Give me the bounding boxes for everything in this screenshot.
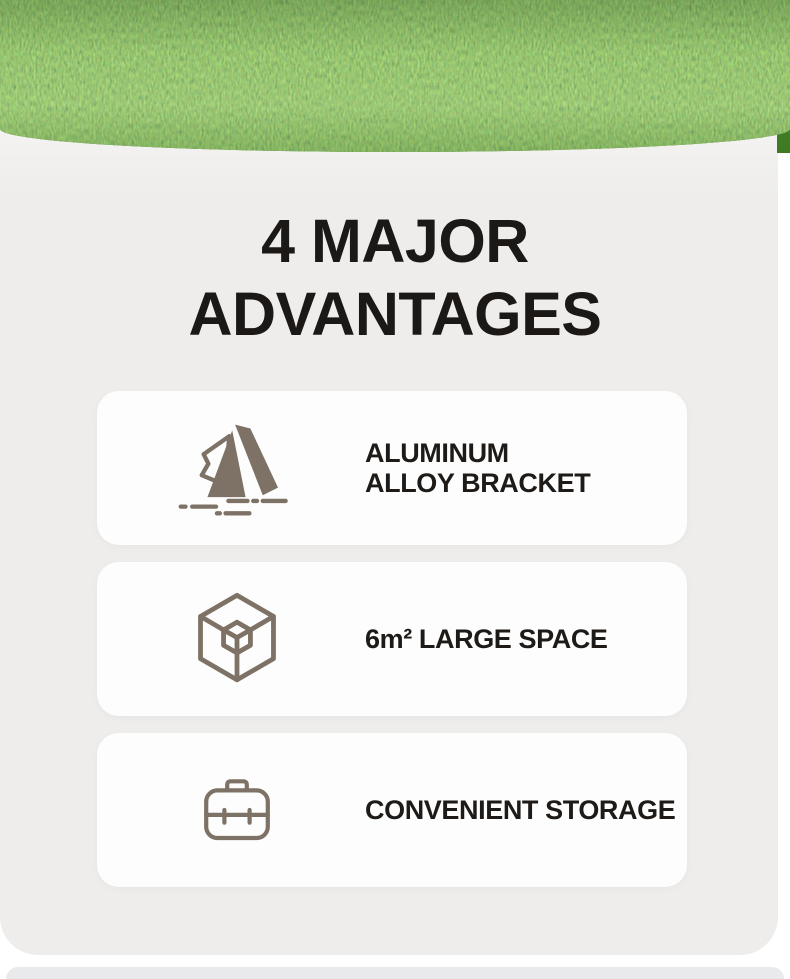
- cube-icon: [172, 589, 302, 690]
- next-section-strip: [6, 967, 784, 979]
- advantage-card-list: ALUMINUM ALLOY BRACKET 6m² LARGE SPACE: [97, 391, 687, 904]
- advantage-label-space: 6m² LARGE SPACE: [365, 624, 608, 654]
- product-advantages-section: 4 MAJOR ADVANTAGES ALUMINUM: [0, 0, 790, 979]
- title-line-1: 4 MAJOR: [0, 205, 790, 278]
- advantage-card-space: 6m² LARGE SPACE: [97, 562, 687, 716]
- advantage-card-bracket: ALUMINUM ALLOY BRACKET: [97, 391, 687, 545]
- title-line-2: ADVANTAGES: [0, 278, 790, 351]
- grass-texture: [0, 0, 790, 152]
- advantage-label-storage: CONVENIENT STORAGE: [365, 795, 675, 825]
- page-title: 4 MAJOR ADVANTAGES: [0, 205, 790, 351]
- advantage-label-bracket: ALUMINUM ALLOY BRACKET: [365, 438, 590, 498]
- briefcase-icon: [172, 776, 302, 844]
- section-divider: [0, 955, 790, 967]
- tent-icon: [172, 417, 302, 520]
- grass-photo: [0, 0, 790, 152]
- advantage-card-storage: CONVENIENT STORAGE: [97, 733, 687, 887]
